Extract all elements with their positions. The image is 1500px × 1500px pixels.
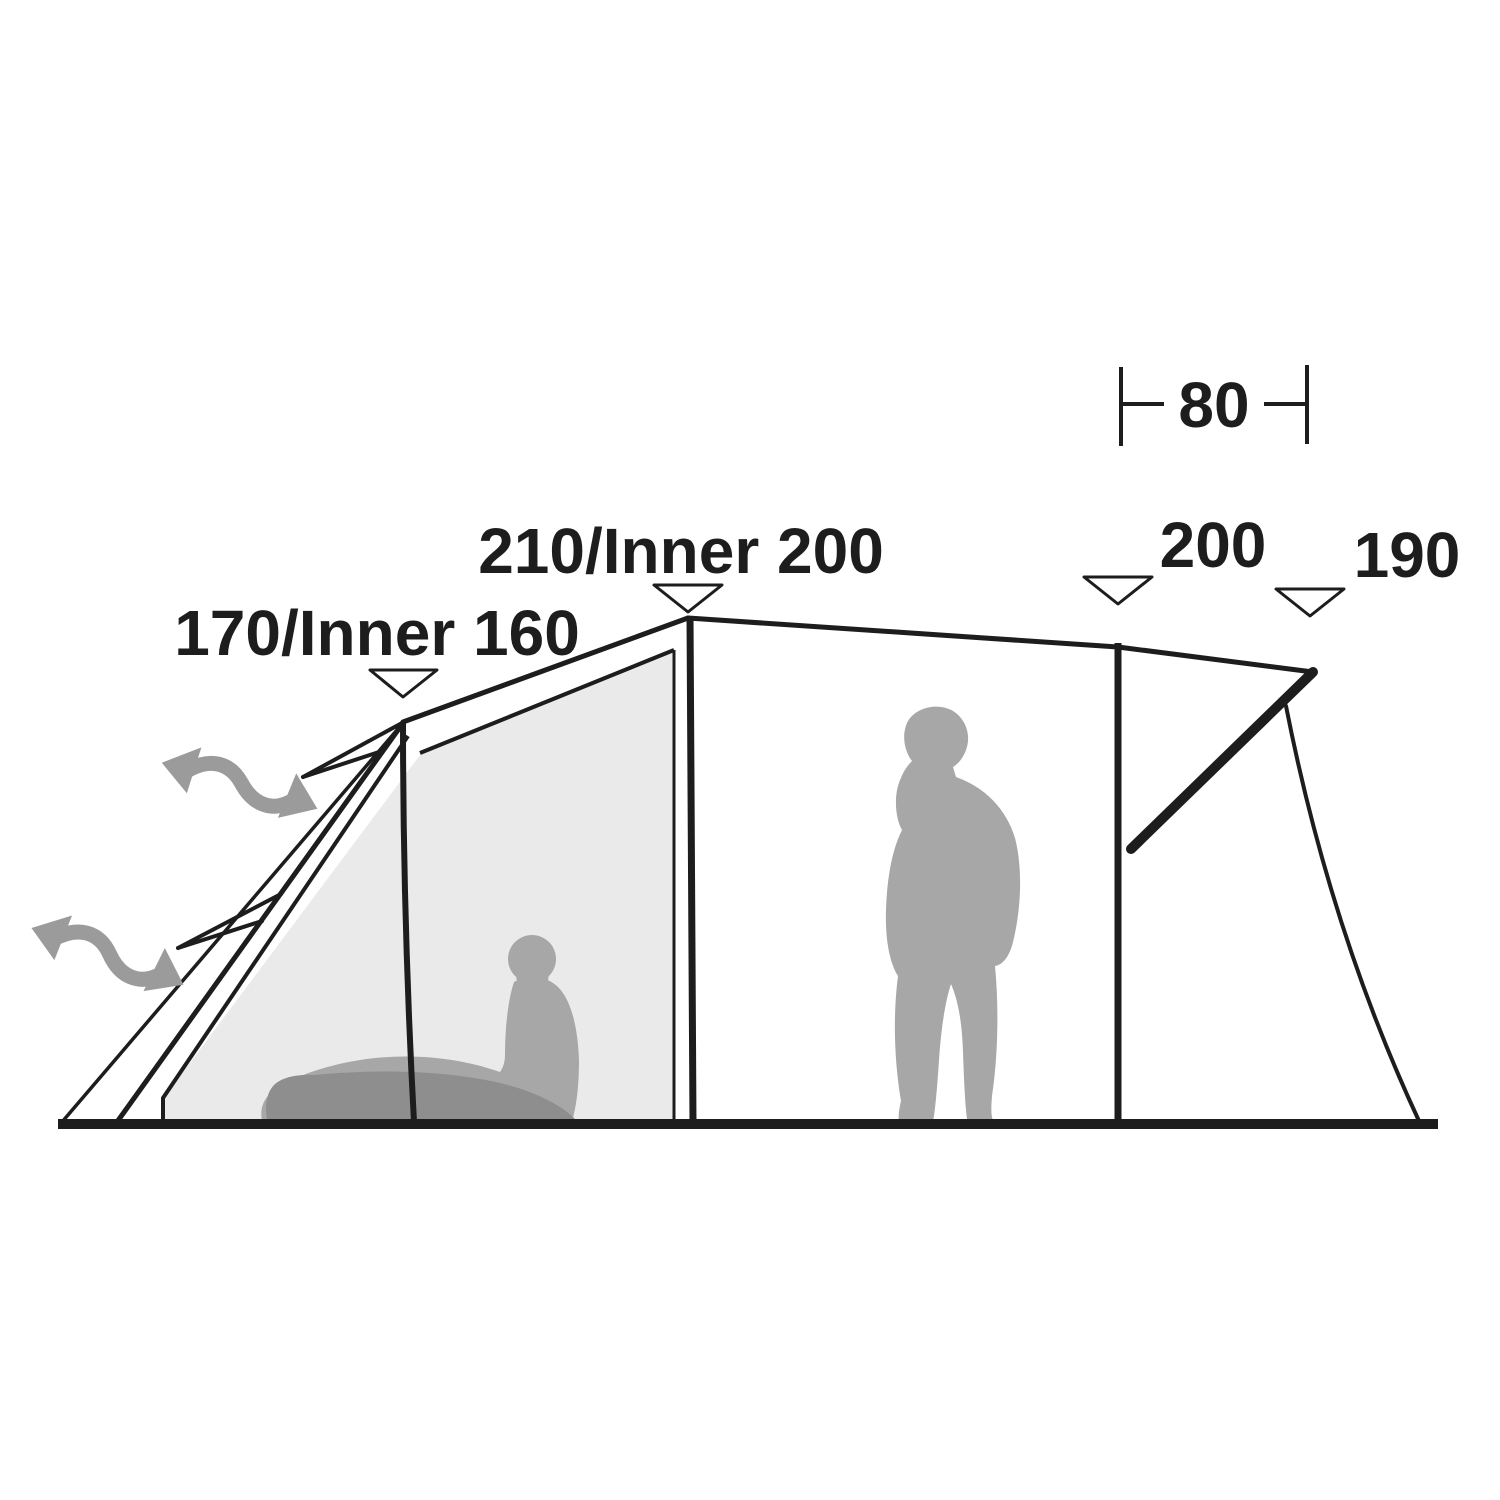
seated-person-neck xyxy=(516,972,549,998)
pointer-triangle-icon xyxy=(370,670,437,697)
diagram-canvas: 170/Inner 160 210/Inner 200 80 200 190 xyxy=(0,0,1500,1500)
airflow-arrow-icon xyxy=(23,895,194,1012)
tent-dimension-diagram: 170/Inner 160 210/Inner 200 80 200 190 xyxy=(0,0,1500,1500)
dimension-label-awning-height: 190 xyxy=(1354,519,1461,591)
pointer-triangle-icon xyxy=(1276,589,1344,616)
airflow-arrow-icon xyxy=(155,729,326,837)
dimension-label-main-peak: 210/Inner 200 xyxy=(478,515,884,587)
lower-vent-flap xyxy=(178,894,281,948)
pointer-triangle-icon xyxy=(654,585,722,612)
standing-person-silhouette xyxy=(886,707,1020,1125)
pointer-triangle-icon xyxy=(1084,577,1152,604)
dimension-label-porch-depth: 80 xyxy=(1178,369,1249,441)
dimension-label-bedroom-peak: 170/Inner 160 xyxy=(174,597,580,669)
roofline-right xyxy=(688,618,1313,672)
door-flap xyxy=(1131,672,1313,849)
inner-tent-panel xyxy=(163,651,674,1122)
porch-rear-wall xyxy=(1286,706,1419,1121)
dimension-label-entrance-height: 200 xyxy=(1160,509,1267,581)
center-pole xyxy=(690,616,693,1124)
